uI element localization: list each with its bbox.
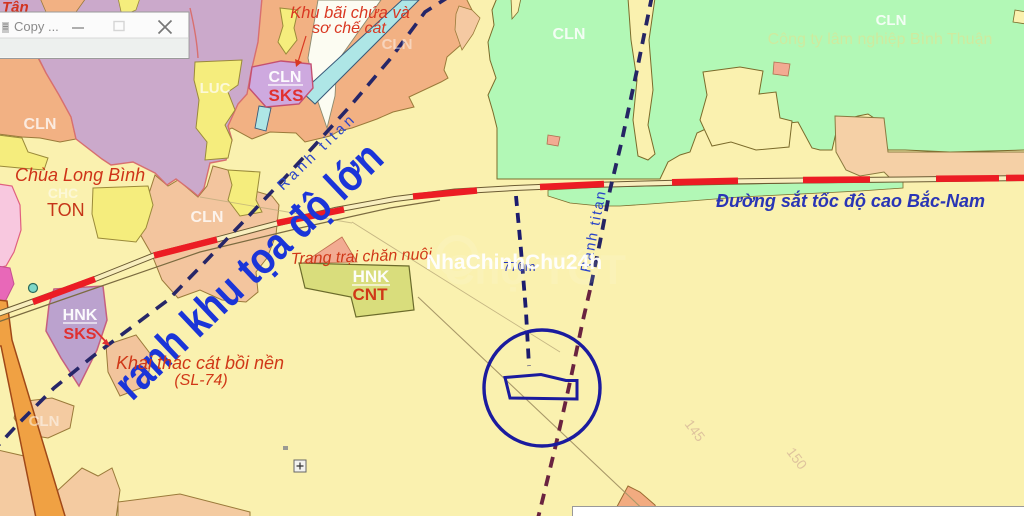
svg-text:SKS: SKS	[269, 86, 304, 105]
svg-text:CLN: CLN	[553, 26, 586, 43]
svg-text:CLN: CLN	[382, 36, 413, 53]
svg-text:Công ty lâm nghiệp Bình Thuận: Công ty lâm nghiệp Bình Thuận	[768, 31, 993, 48]
svg-text:Chùa Long Bình: Chùa Long Bình	[15, 165, 145, 185]
svg-text:CLN: CLN	[191, 209, 224, 226]
svg-text:TON: TON	[47, 200, 85, 220]
svg-text:CNT: CNT	[353, 285, 389, 304]
svg-text:NhaChinhChu24h: NhaChinhChu24h	[426, 251, 602, 274]
svg-text:LUC: LUC	[200, 80, 231, 97]
svg-text:CLN: CLN	[269, 69, 302, 86]
svg-text:SKS: SKS	[64, 326, 97, 343]
svg-text:(SL-74): (SL-74)	[174, 372, 227, 389]
svg-text:HNK: HNK	[353, 267, 391, 286]
svg-text:Copy ...: Copy ...	[14, 19, 59, 34]
svg-text:CLN: CLN	[29, 413, 60, 430]
svg-text:sơ chế cát: sơ chế cát	[312, 20, 386, 37]
svg-text:Đường sắt tốc độ cao Bắc-Nam: Đường sắt tốc độ cao Bắc-Nam	[716, 190, 985, 211]
svg-text:HNK: HNK	[63, 307, 98, 324]
svg-text:Khai thác cát bồi nền: Khai thác cát bồi nền	[116, 353, 284, 373]
svg-text:CHC: CHC	[48, 185, 78, 201]
svg-text:CLN: CLN	[24, 116, 57, 133]
svg-text:CLN: CLN	[876, 12, 907, 29]
